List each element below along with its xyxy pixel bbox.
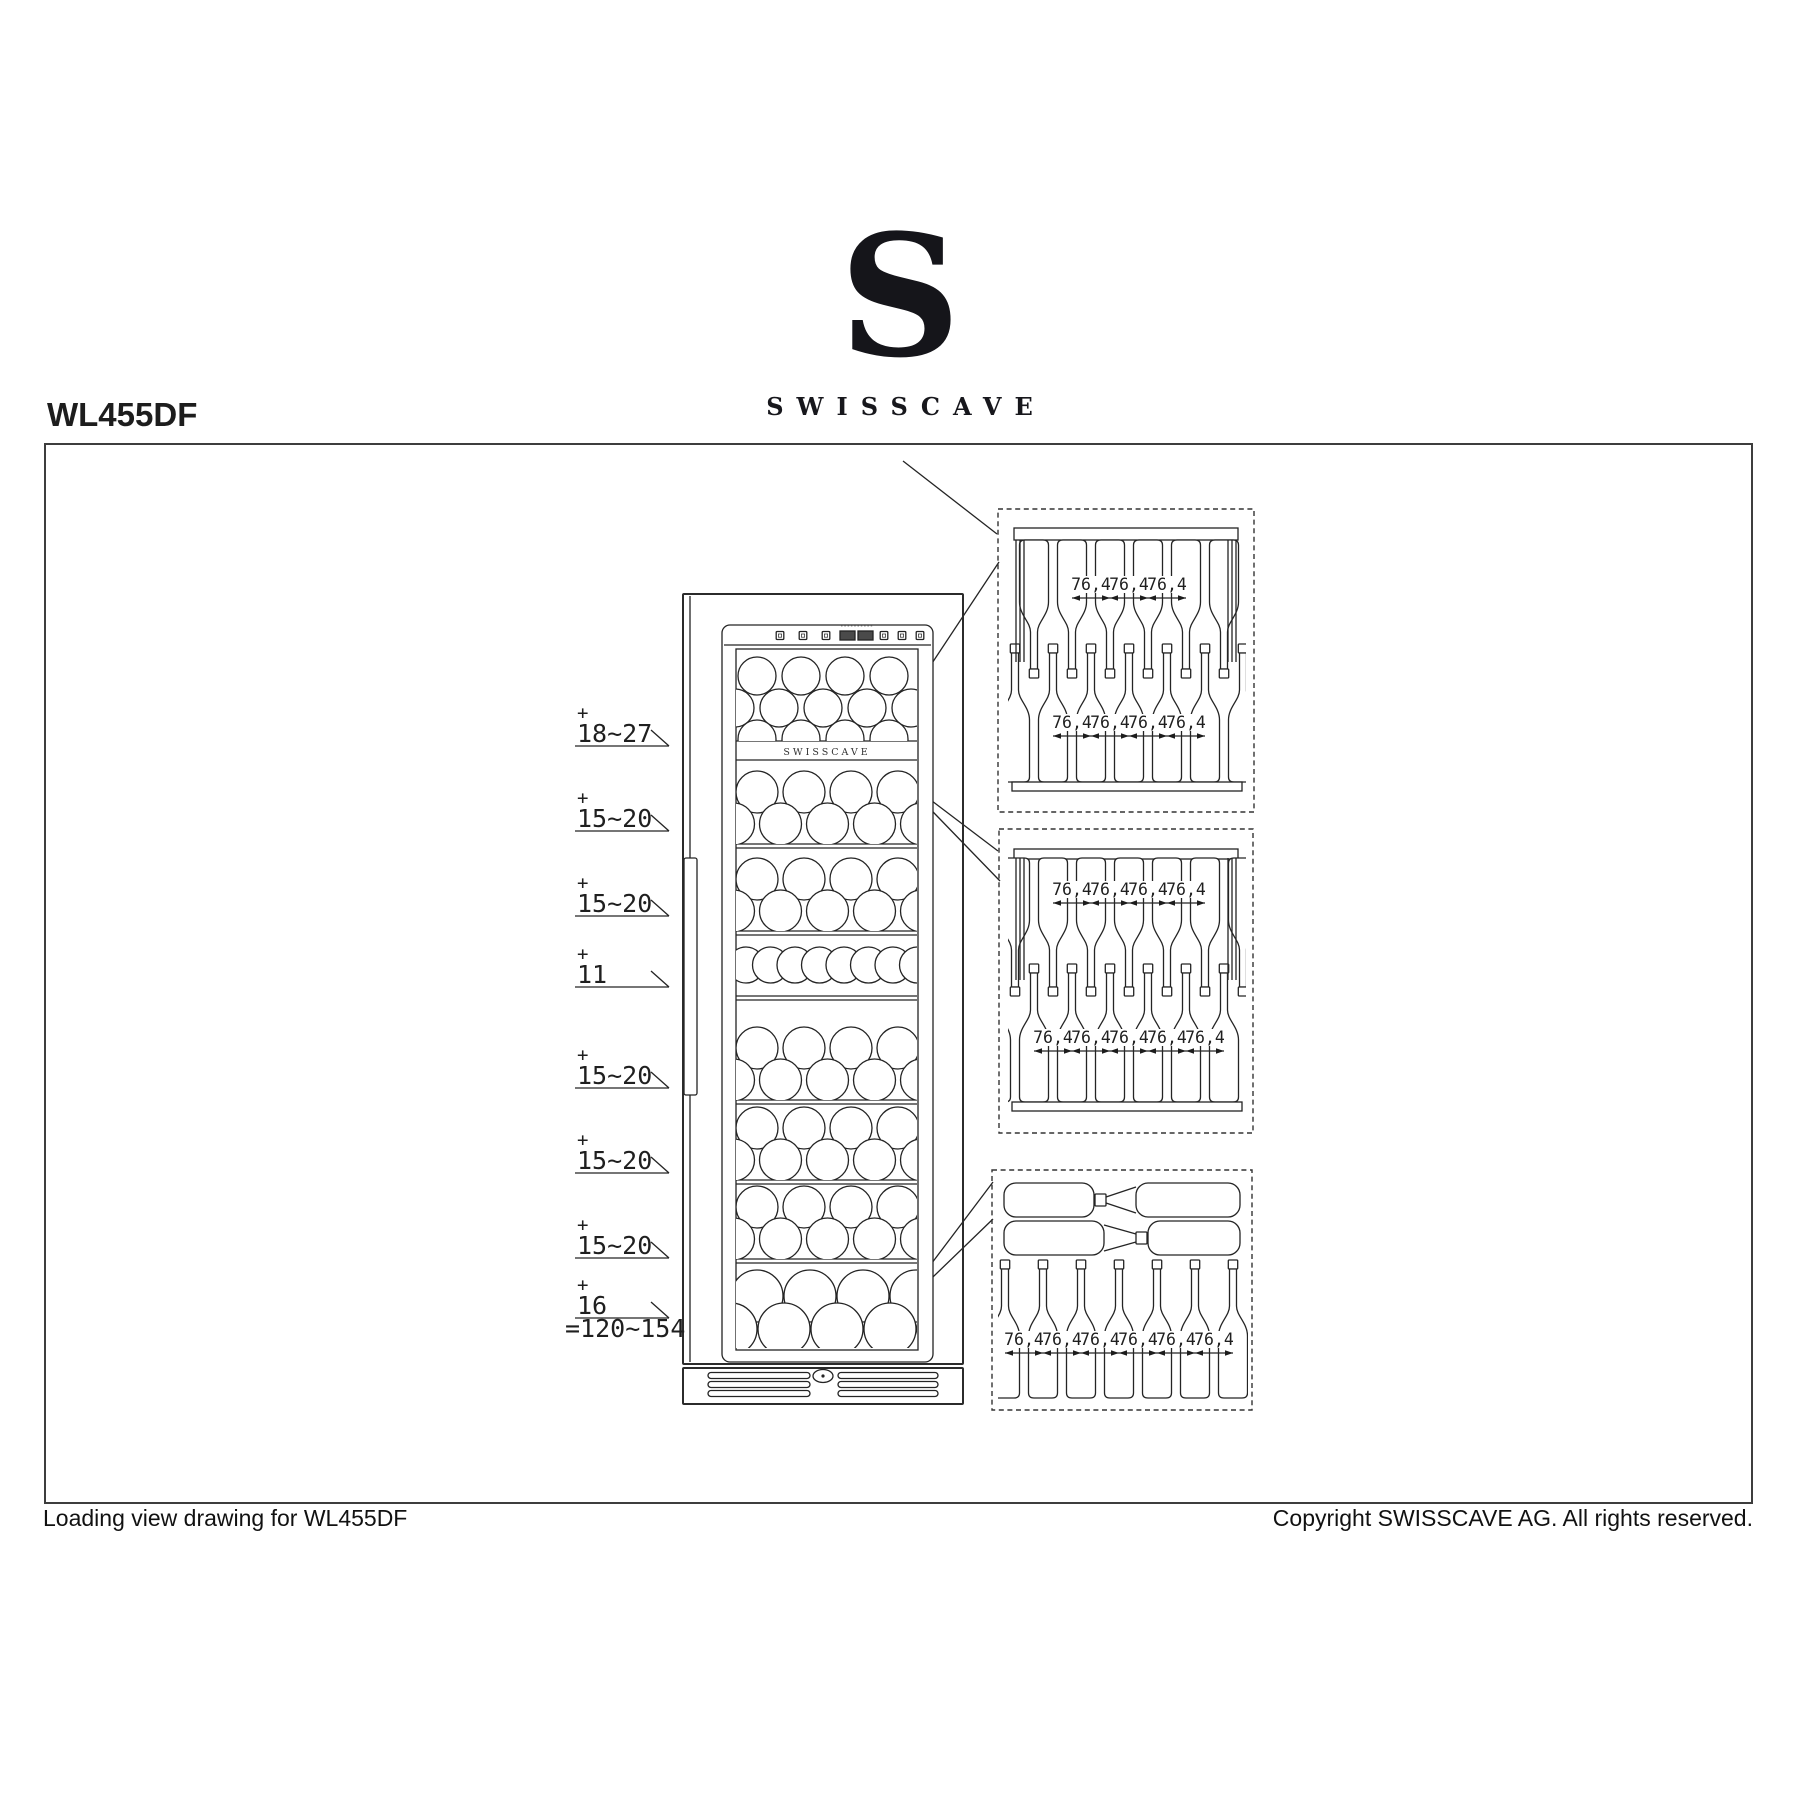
bottle-icon	[982, 973, 1011, 1102]
bottle-circle-icon	[782, 657, 820, 695]
vent-slat	[708, 1382, 810, 1388]
lock-keyhole	[821, 1374, 824, 1377]
loading-view-page: { "page": { "title": "WL455DF" }, "logo"…	[0, 0, 1800, 1800]
bottle-circle-icon	[848, 689, 886, 727]
bottle-circle-icon	[826, 657, 864, 695]
zone-total-label: =120~154	[565, 1314, 685, 1343]
detail-box-upper-shelf-detail: 76,476,476,476,476,476,476,4	[998, 509, 1258, 812]
dimension-label: 76,4	[1109, 575, 1149, 594]
zone-capacity-label: 18~27	[577, 719, 652, 748]
bottle-circle-icon	[854, 890, 896, 932]
bottle-cap	[1181, 964, 1190, 973]
zone-leader-tick	[651, 900, 669, 916]
bottle-inverted-icon	[1172, 540, 1201, 669]
bottle-cap	[1228, 1260, 1237, 1269]
zone-leader-tick	[651, 971, 669, 987]
bottle-cap	[1067, 669, 1076, 678]
bottle-cap	[1200, 644, 1209, 653]
shelf-bottom-bar	[1012, 1102, 1242, 1111]
bottle-circle-icon	[804, 689, 842, 727]
bottle-circle-icon	[760, 1059, 802, 1101]
bottle-cap	[1181, 669, 1190, 678]
bottle-cap	[1124, 644, 1133, 653]
dimension-label: 76,4	[1147, 575, 1187, 594]
bottle-circle-icon	[738, 657, 776, 695]
bottle-neck	[1106, 1203, 1136, 1213]
bottle-cap	[1190, 1260, 1199, 1269]
bottle-cap	[1136, 1232, 1147, 1244]
zone-capacity-label: 11	[577, 960, 607, 989]
detail-content	[1001, 528, 1258, 791]
bottle-circle-icon	[807, 890, 849, 932]
bottle-cap	[1143, 669, 1152, 678]
bottle-cap	[1219, 964, 1228, 973]
bottle-cap	[1105, 669, 1114, 678]
zone-leader-tick	[651, 730, 669, 746]
vent-slat	[838, 1373, 938, 1379]
bottle-circle-icon	[811, 1303, 863, 1355]
bottle-cap	[1152, 1260, 1161, 1269]
bottle-cap	[1200, 987, 1209, 996]
zone-leader-tick	[651, 815, 669, 831]
bottle-cap	[1143, 964, 1152, 973]
bottle-cap	[1257, 964, 1266, 973]
bottle-circle-icon	[807, 1059, 849, 1101]
dimension-label: 76,4	[1109, 1028, 1149, 1047]
bottle-circle-icon	[854, 1218, 896, 1260]
bottle-neck	[1104, 1242, 1136, 1251]
bottle-cap	[1238, 987, 1247, 996]
dimension-label: 76,4	[1128, 880, 1168, 899]
bottle-circle-icon	[807, 1139, 849, 1181]
panel-display	[858, 631, 873, 640]
bottle-inverted-icon	[1134, 540, 1163, 669]
bottle-cap	[1114, 1260, 1123, 1269]
bottle-cap	[1162, 644, 1171, 653]
shelf-compartment	[728, 947, 936, 983]
dimension-label: 76,4	[1052, 880, 1092, 899]
bottle-neck	[1106, 1187, 1136, 1197]
bottle-cap	[1076, 1260, 1085, 1269]
fridge-brand-label: SWISSCAVE	[783, 747, 870, 758]
bottle-horizontal-icon	[1004, 1183, 1094, 1217]
bottle-inverted-icon	[1001, 858, 1030, 987]
bottle-cap	[1010, 644, 1019, 653]
bottle-cap	[1029, 964, 1038, 973]
dimension-label: 76,4	[1052, 713, 1092, 732]
bottle-inverted-icon	[1191, 858, 1220, 987]
dimension-label: 76,4	[1071, 575, 1111, 594]
footer-caption: Loading view drawing for WL455DF	[43, 1505, 407, 1532]
zone-capacity-labels: +18~27+15~20+15~20+11+15~20+15~20+15~20+…	[565, 702, 685, 1343]
bottle-cap	[1029, 669, 1038, 678]
bottle-icon	[1001, 653, 1030, 782]
bottle-circle-icon	[760, 689, 798, 727]
bottle-circle-icon	[760, 803, 802, 845]
bottle-cap	[1048, 644, 1057, 653]
bottle-circle-icon	[807, 1218, 849, 1260]
vent-slat	[708, 1373, 810, 1379]
bottle-cap	[1124, 987, 1133, 996]
dimension-label: 76,4	[1185, 1028, 1225, 1047]
detail-box-bottom-shelf-detail: 76,476,476,476,476,476,4	[991, 1170, 1286, 1410]
vent-slat	[838, 1382, 938, 1388]
dimension-label: 76,4	[1071, 1028, 1111, 1047]
bottle-cap	[1048, 987, 1057, 996]
bottle-cap	[1219, 669, 1228, 678]
bottle-inverted-icon	[1096, 540, 1125, 669]
bottle-circle-icon	[854, 803, 896, 845]
zone-leader-tick	[651, 1072, 669, 1088]
dimension-label: 76,4	[1166, 880, 1206, 899]
dimension-label: 76,4	[1147, 1028, 1187, 1047]
bottle-circle-icon	[760, 890, 802, 932]
bottle-inverted-icon	[1058, 540, 1087, 669]
bottle-inverted-icon	[1210, 540, 1239, 669]
panel-display	[840, 631, 855, 640]
bottle-circle-icon	[760, 1218, 802, 1260]
leader-line	[903, 461, 997, 534]
bottle-cap	[1266, 1260, 1275, 1269]
bottle-horizontal-icon	[1004, 1221, 1104, 1255]
bottle-circle-icon	[870, 657, 908, 695]
bottle-inverted-icon	[1153, 858, 1182, 987]
dimension-label: 76,4	[1033, 1028, 1073, 1047]
bottle-icon	[1257, 1269, 1286, 1398]
bottle-cap	[1086, 987, 1095, 996]
zone-leader-tick	[651, 1157, 669, 1173]
zone-capacity-label: 15~20	[577, 804, 652, 833]
bottle-cap	[1105, 964, 1114, 973]
bottle-icon	[1248, 973, 1277, 1102]
detail-content	[991, 1183, 1286, 1398]
dimension-label: 76,4	[1004, 1330, 1044, 1349]
bottle-circle-icon	[854, 1139, 896, 1181]
footer-copyright: Copyright SWISSCAVE AG. All rights reser…	[1273, 1505, 1753, 1532]
bottle-horizontal-icon	[1148, 1221, 1240, 1255]
bottle-cap	[1095, 1194, 1106, 1206]
bottle-cap	[1000, 1260, 1009, 1269]
dimension-label: 76,4	[1166, 713, 1206, 732]
bottle-cap	[1162, 987, 1171, 996]
bottle-cap	[1010, 987, 1019, 996]
shelf-top-bar	[1014, 528, 1238, 540]
bottle-circle-icon	[807, 803, 849, 845]
bottle-horizontal-icon	[1136, 1183, 1240, 1217]
detail-box-middle-shelf-detail: 76,476,476,476,476,476,476,476,476,4	[982, 829, 1277, 1133]
zone-capacity-label: 15~20	[577, 1061, 652, 1090]
bottle-icon	[1229, 653, 1258, 782]
bottle-inverted-icon	[1077, 858, 1106, 987]
bottle-circle-icon	[864, 1303, 916, 1355]
zone-capacity-label: 15~20	[577, 889, 652, 918]
dimension-label: 76,4	[1090, 880, 1130, 899]
dimension-label: 76,4	[1194, 1330, 1234, 1349]
dimension-label: 76,4	[1080, 1330, 1120, 1349]
bottle-cap	[1238, 644, 1247, 653]
zone-capacity-label: 15~20	[577, 1146, 652, 1175]
bottle-inverted-icon	[1115, 858, 1144, 987]
door-handle	[684, 858, 697, 1095]
generated-drawing: +18~27+15~20+15~20+11+15~20+15~20+15~20+…	[565, 461, 1286, 1410]
bottle-cap	[1038, 1260, 1047, 1269]
vent-slat	[708, 1391, 810, 1397]
bottle-circle-icon	[854, 1059, 896, 1101]
vent-slat	[838, 1391, 938, 1397]
wine-cabinet-drawing	[683, 594, 969, 1404]
dimension-label: 76,4	[1156, 1330, 1196, 1349]
shelf-bottom-bar	[1012, 782, 1242, 791]
bottle-circle-icon	[758, 1303, 810, 1355]
bottle-inverted-icon	[1039, 858, 1068, 987]
dimension-label: 76,4	[1128, 713, 1168, 732]
bottle-neck	[1104, 1225, 1136, 1234]
zone-leader-tick	[651, 1242, 669, 1258]
bottle-cap	[1067, 964, 1076, 973]
bottle-cap	[1086, 644, 1095, 653]
dimension-label: 76,4	[1118, 1330, 1158, 1349]
dimension-label: 76,4	[1090, 713, 1130, 732]
bottle-circle-icon	[760, 1139, 802, 1181]
dimension-label: 76,4	[1042, 1330, 1082, 1349]
zone-capacity-label: 15~20	[577, 1231, 652, 1260]
